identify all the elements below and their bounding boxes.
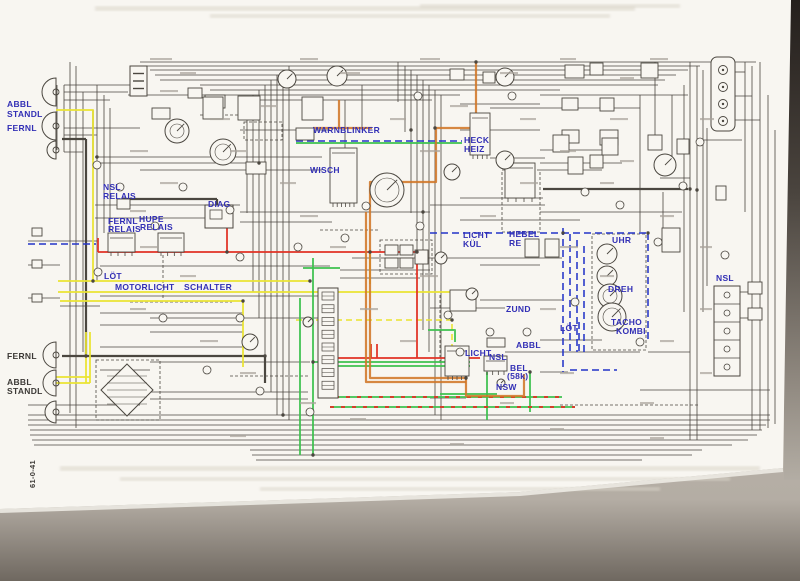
label-zund: ZUND xyxy=(506,304,531,314)
microtext-mark xyxy=(500,402,514,404)
microtext-mark xyxy=(130,150,148,152)
junction-dot xyxy=(263,354,266,357)
relay-box xyxy=(677,139,689,154)
relay-box xyxy=(662,228,680,252)
microtext-mark xyxy=(700,372,712,374)
scanned-wiring-diagram-page: ABBLSTANDLFERNLNSLRELAISFERNLRELAISHUPER… xyxy=(0,0,800,581)
microtext-mark xyxy=(480,215,496,217)
microtext-mark xyxy=(350,418,366,420)
microtext-mark xyxy=(300,215,318,217)
microtext-mark xyxy=(340,72,360,74)
label-standl: STANDL xyxy=(7,109,43,119)
terminal-ring xyxy=(179,183,187,191)
microtext-mark xyxy=(130,308,146,310)
label-motorlicht: MOTORLICHT xyxy=(115,282,175,292)
microtext-mark xyxy=(200,340,218,342)
microtext-mark xyxy=(230,435,246,437)
relay-box xyxy=(562,98,578,110)
terminal-strip-post-dot xyxy=(722,69,724,71)
terminal-ring xyxy=(721,251,729,259)
microtext-mark xyxy=(420,275,438,277)
microtext-mark xyxy=(260,105,276,107)
microtext-mark xyxy=(450,105,468,107)
microtext-mark xyxy=(520,182,538,184)
relay-box xyxy=(238,96,260,120)
label-uhr: UHR xyxy=(612,235,631,245)
microtext-mark xyxy=(130,210,146,212)
relay-box xyxy=(716,186,726,200)
microtext-mark xyxy=(640,402,654,404)
terminal-ring xyxy=(306,408,314,416)
relay-box xyxy=(32,228,42,236)
terminal-ring xyxy=(94,268,102,276)
bleedthrough-row xyxy=(120,477,730,481)
microtext-mark xyxy=(660,340,674,342)
label-l-t: LÖT xyxy=(560,323,578,333)
microtext-mark xyxy=(180,72,196,74)
microtext-mark xyxy=(620,77,634,79)
microtext-mark xyxy=(140,246,158,248)
junction-dot xyxy=(225,250,228,253)
label-kombi: KOMBI xyxy=(616,326,646,336)
microtext-mark xyxy=(700,308,712,310)
terminal-ring xyxy=(636,338,644,346)
terminal-ring xyxy=(616,201,624,209)
microtext-mark xyxy=(420,150,440,152)
microtext-mark xyxy=(280,182,296,184)
junction-dot xyxy=(561,231,564,234)
junction-dot xyxy=(257,161,260,164)
label--58k-: (58k) xyxy=(507,371,528,381)
terminal-ring xyxy=(571,298,579,306)
bleedthrough-row xyxy=(420,4,680,8)
terminal-ring xyxy=(341,234,349,242)
microtext-mark xyxy=(660,215,674,217)
microtext-mark xyxy=(650,58,668,60)
junction-dot xyxy=(528,370,531,373)
switch-box xyxy=(108,233,135,252)
label-dreh: DREH xyxy=(608,284,633,294)
microtext-mark xyxy=(700,118,714,120)
relay-box xyxy=(748,282,762,294)
microtext-mark xyxy=(300,58,318,60)
junction-dot xyxy=(95,155,98,158)
junction-dot xyxy=(474,60,477,63)
label-schalter: SCHALTER xyxy=(184,282,232,292)
relay-box xyxy=(483,72,495,83)
relay-box xyxy=(246,162,266,174)
terminal-ring xyxy=(416,222,424,230)
junction-dot xyxy=(84,354,87,357)
label-nsl: NSL xyxy=(489,352,507,362)
terminal-ring xyxy=(203,366,211,374)
relay-box xyxy=(32,294,42,302)
label-wisch: WISCH xyxy=(310,165,340,175)
microtext-mark xyxy=(150,58,172,60)
microtext-mark xyxy=(600,275,614,277)
terminal-ring xyxy=(581,188,589,196)
terminal-ring xyxy=(93,161,101,169)
microtext-mark xyxy=(550,428,564,430)
junction-dot xyxy=(695,188,698,191)
terminal-ring xyxy=(654,238,662,246)
label-relais: RELAIS xyxy=(103,191,136,201)
junction-dot xyxy=(409,128,412,131)
terminal-ring xyxy=(414,92,422,100)
label-relais: RELAIS xyxy=(140,222,173,232)
terminal-ring xyxy=(256,387,264,395)
microtext-mark xyxy=(160,182,178,184)
junction-dot xyxy=(450,318,453,321)
microtext-mark xyxy=(160,90,178,92)
relay-box xyxy=(525,239,539,257)
microtext-mark xyxy=(700,246,712,248)
microtext-mark xyxy=(180,275,196,277)
relay-box xyxy=(590,155,603,168)
microtext-mark xyxy=(230,150,246,152)
label-relais: RELAIS xyxy=(108,224,141,234)
label-abbl: ABBL xyxy=(7,99,32,109)
junction-dot xyxy=(433,126,436,129)
relay-box xyxy=(565,65,584,78)
junction-dot xyxy=(646,231,649,234)
microtext-mark xyxy=(390,118,406,120)
microtext-mark xyxy=(610,118,628,120)
switch-box xyxy=(330,148,357,203)
microtext-mark xyxy=(540,308,556,310)
relay-box xyxy=(385,258,398,268)
wiring-diagram-scan: ABBLSTANDLFERNLNSLRELAISFERNLRELAISHUPER… xyxy=(0,0,800,581)
label-nsl: NSL xyxy=(716,273,734,283)
junction-dot xyxy=(415,250,418,253)
relay-box xyxy=(545,239,559,257)
label-warnblinker: WARNBLINKER xyxy=(313,125,380,135)
terminal-ring xyxy=(486,328,494,336)
terminal-ring xyxy=(362,202,370,210)
relay-box xyxy=(487,338,505,347)
junction-dot xyxy=(281,413,284,416)
terminal-ring xyxy=(508,92,516,100)
junction-dot xyxy=(421,210,424,213)
bleedthrough-row xyxy=(210,14,610,18)
terminal-ring xyxy=(523,328,531,336)
terminal-ring xyxy=(679,182,687,190)
label-nsw: NSW xyxy=(496,382,517,392)
junction-dot xyxy=(688,187,691,190)
relay-box xyxy=(590,63,603,75)
relay-box xyxy=(400,258,413,268)
microtext-mark xyxy=(560,372,574,374)
label-standl: STANDL xyxy=(7,386,43,396)
terminal-strip-post-dot xyxy=(722,103,724,105)
microtext-mark xyxy=(400,340,416,342)
junction-dot xyxy=(311,360,314,363)
microtext-mark xyxy=(520,118,536,120)
terminal-ring xyxy=(696,138,704,146)
label-abbl: ABBL xyxy=(516,340,541,350)
microtext-mark xyxy=(560,246,578,248)
relay-box xyxy=(400,245,413,255)
bleedthrough-row xyxy=(60,466,760,471)
microtext-mark xyxy=(300,402,316,404)
relay-box xyxy=(748,308,762,320)
microtext-mark xyxy=(450,443,464,445)
relay-box xyxy=(450,69,464,80)
junction-dot xyxy=(308,279,311,282)
terminal-ring xyxy=(236,314,244,322)
microtext-mark xyxy=(560,150,576,152)
label-fernl: FERNL xyxy=(7,351,37,361)
terminal-ring xyxy=(456,348,464,356)
switch-box xyxy=(158,233,184,252)
relay-box xyxy=(641,63,658,78)
terminal-ring xyxy=(236,253,244,261)
microtext-mark xyxy=(500,72,518,74)
relay-box xyxy=(600,98,614,111)
rear-lamp-strip xyxy=(714,286,740,376)
relay-box xyxy=(568,157,583,174)
junction-dot xyxy=(368,250,371,253)
terminal-strip-post-dot xyxy=(722,86,724,88)
microtext-mark xyxy=(650,437,664,439)
label-61-0-41: 61-0-41 xyxy=(28,460,37,488)
label-re: RE xyxy=(509,238,521,248)
microtext-mark xyxy=(420,58,440,60)
label-heiz: HEIZ xyxy=(464,144,485,154)
relay-box xyxy=(553,135,569,152)
relay-box xyxy=(188,88,202,98)
relay-box xyxy=(385,245,398,255)
terminal-ring xyxy=(294,243,302,251)
junction-dot xyxy=(464,376,467,379)
relay-box xyxy=(602,138,618,155)
microtext-mark xyxy=(600,182,614,184)
relay-box xyxy=(648,135,662,150)
label-k-l: KÜL xyxy=(463,239,481,249)
label-diag: DIAG xyxy=(208,199,231,209)
microtext-mark xyxy=(330,246,346,248)
label-fernl: FERNL xyxy=(7,123,37,133)
relay-box xyxy=(296,128,314,140)
label-licht: LICHT xyxy=(465,348,492,358)
microtext-mark xyxy=(360,308,378,310)
junction-dot xyxy=(311,453,314,456)
relay-box xyxy=(302,97,323,120)
relay-box xyxy=(32,260,42,268)
microtext-mark xyxy=(210,118,230,120)
label-l-t: LÖT xyxy=(104,271,122,281)
microtext-mark xyxy=(560,58,576,60)
terminal-strip-post-dot xyxy=(722,120,724,122)
junction-dot xyxy=(91,279,94,282)
microtext-mark xyxy=(240,372,256,374)
relay-box xyxy=(203,97,223,119)
terminal-ring xyxy=(159,314,167,322)
microtext-mark xyxy=(620,160,634,162)
terminal-ring xyxy=(444,311,452,319)
relay-box xyxy=(152,108,170,119)
junction-dot xyxy=(241,299,244,302)
